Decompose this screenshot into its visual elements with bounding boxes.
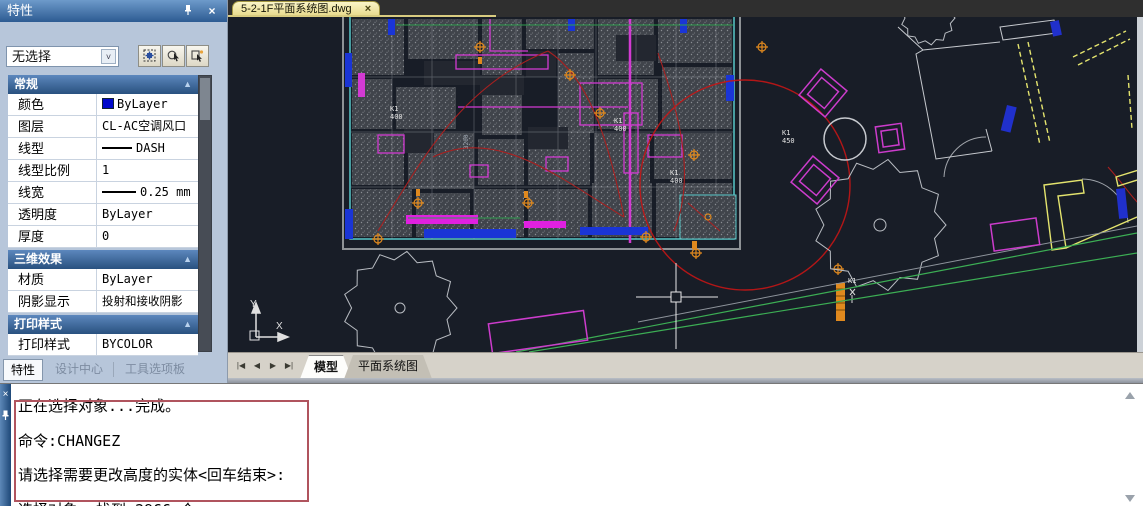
collapse-icon[interactable]: ▲ (183, 315, 192, 334)
palette-titlebar[interactable]: 特性 × (0, 0, 227, 22)
nav-next-icon[interactable]: ▶ (266, 358, 280, 373)
section-header-general[interactable]: 常规 ▲ (8, 75, 198, 94)
layout-tabbar: |◀ ◀ ▶ ▶| 模型 平面系统图 (228, 352, 1143, 378)
tab-layout[interactable]: 平面系统图 (344, 355, 432, 379)
prop-value-layer[interactable]: CL-AC空调风口 (96, 116, 198, 138)
ucs-icon: Y X (250, 299, 288, 341)
prop-row-transparency: 透明度 ByLayer (8, 204, 198, 226)
tab-properties[interactable]: 特性 (3, 359, 43, 381)
prop-row-thickness: 厚度 0 (8, 226, 198, 248)
close-icon[interactable]: × (1, 389, 10, 400)
command-window-titlebar[interactable]: × (0, 384, 11, 506)
chevron-down-icon[interactable]: ˅ (101, 49, 116, 64)
lineweight-sample (102, 191, 136, 193)
prop-row-plotstyle: 打印样式 BYCOLOR (8, 334, 198, 356)
linetype-sample (102, 147, 132, 149)
prop-value-linetype[interactable]: DASH (96, 138, 198, 160)
document-tab-label: 5-2-1F平面系统图.dwg (241, 3, 352, 15)
svg-text:K1: K1 (390, 105, 398, 113)
prop-row-material: 材质 ByLayer (8, 269, 198, 291)
pin-icon[interactable] (181, 4, 195, 18)
svg-text:K1: K1 (670, 169, 678, 177)
svg-text:400: 400 (614, 125, 627, 133)
svg-text:400: 400 (390, 113, 403, 121)
pin-icon[interactable] (1, 408, 10, 426)
tab-designcenter[interactable]: 设计中心 (48, 359, 110, 381)
palette-scrollbar[interactable] (198, 75, 212, 352)
scroll-up-icon[interactable] (1125, 392, 1135, 399)
hatch-blocks (352, 19, 732, 237)
svg-text:Y: Y (250, 299, 257, 310)
palette-tabs: 特性 设计中心 工具选项板 (0, 356, 228, 383)
prop-value-transparency[interactable]: ByLayer (96, 204, 198, 226)
scrollbar-thumb[interactable] (200, 78, 210, 120)
prop-value-lineweight[interactable]: 0.25 mm (96, 182, 198, 204)
selection-value: 无选择 (12, 49, 51, 64)
scroll-down-icon[interactable] (1125, 495, 1135, 502)
nav-prev-icon[interactable]: ◀ (250, 358, 264, 373)
prop-row-layer: 图层 CL-AC空调风口 (8, 116, 198, 138)
quick-select-button[interactable] (138, 45, 161, 67)
corner-room (680, 195, 736, 239)
color-swatch (102, 98, 114, 109)
collapse-icon[interactable]: ▲ (183, 250, 192, 269)
crosshair-cursor (636, 263, 718, 349)
section-header-3d[interactable]: 三维效果 ▲ (8, 250, 198, 269)
prop-value-ltscale[interactable]: 1 (96, 160, 198, 182)
prop-value-color[interactable]: ByLayer (96, 94, 198, 116)
prop-row-shadow: 阴影显示 投射和接收阴影 (8, 291, 198, 313)
command-window[interactable]: × 正在选择对象...完成。 命令:CHANGEZ 请选择需要更改高度的实体<回… (0, 383, 1143, 506)
svg-text:K1: K1 (848, 277, 856, 285)
svg-text:450: 450 (782, 137, 795, 145)
prop-row-lineweight: 线宽 0.25 mm (8, 182, 198, 204)
tab-toolpalettes[interactable]: 工具选项板 (118, 359, 192, 381)
drawing-canvas[interactable]: K1400 K1400 K1400 K1450 K1 3200 Y X (228, 17, 1143, 352)
nav-last-icon[interactable]: ▶| (282, 358, 296, 373)
prop-value-material[interactable]: ByLayer (96, 269, 198, 291)
prop-value-plotstyle[interactable]: BYCOLOR (96, 334, 198, 356)
section-header-plotstyle[interactable]: 打印样式 ▲ (8, 315, 198, 334)
annotation-highlight-box (14, 400, 309, 502)
prop-value-thickness[interactable]: 0 (96, 226, 198, 248)
collapse-icon[interactable]: ▲ (183, 75, 192, 94)
palette-title-label: 特性 (7, 3, 33, 18)
select-objects-button[interactable] (162, 45, 185, 67)
close-icon[interactable]: × (205, 4, 219, 18)
toggle-pickadd-button[interactable] (186, 45, 209, 67)
svg-text:K1: K1 (782, 129, 790, 137)
prop-row-ltscale: 线型比例 1 (8, 160, 198, 182)
prop-value-shadow[interactable]: 投射和接收阴影 (96, 291, 198, 313)
svg-text:K1: K1 (614, 117, 622, 125)
svg-text:400: 400 (670, 177, 683, 185)
document-tabbar: 5-2-1F平面系统图.dwg × (228, 0, 1143, 17)
autocad-window: 特性 × 无选择 ˅ 常规 ▲ 颜色 ByLaye (0, 0, 1143, 506)
prop-row-linetype: 线型 DASH (8, 138, 198, 160)
selection-dropdown[interactable]: 无选择 ˅ (6, 46, 119, 67)
prop-row-color: 颜色 ByLayer (8, 94, 198, 116)
tab-model[interactable]: 模型 (300, 355, 352, 379)
svg-text:3200: 3200 (463, 134, 470, 149)
svg-text:X: X (276, 321, 283, 332)
nav-first-icon[interactable]: |◀ (234, 358, 248, 373)
properties-palette: 特性 × 无选择 ˅ 常规 ▲ 颜色 ByLaye (0, 0, 228, 383)
